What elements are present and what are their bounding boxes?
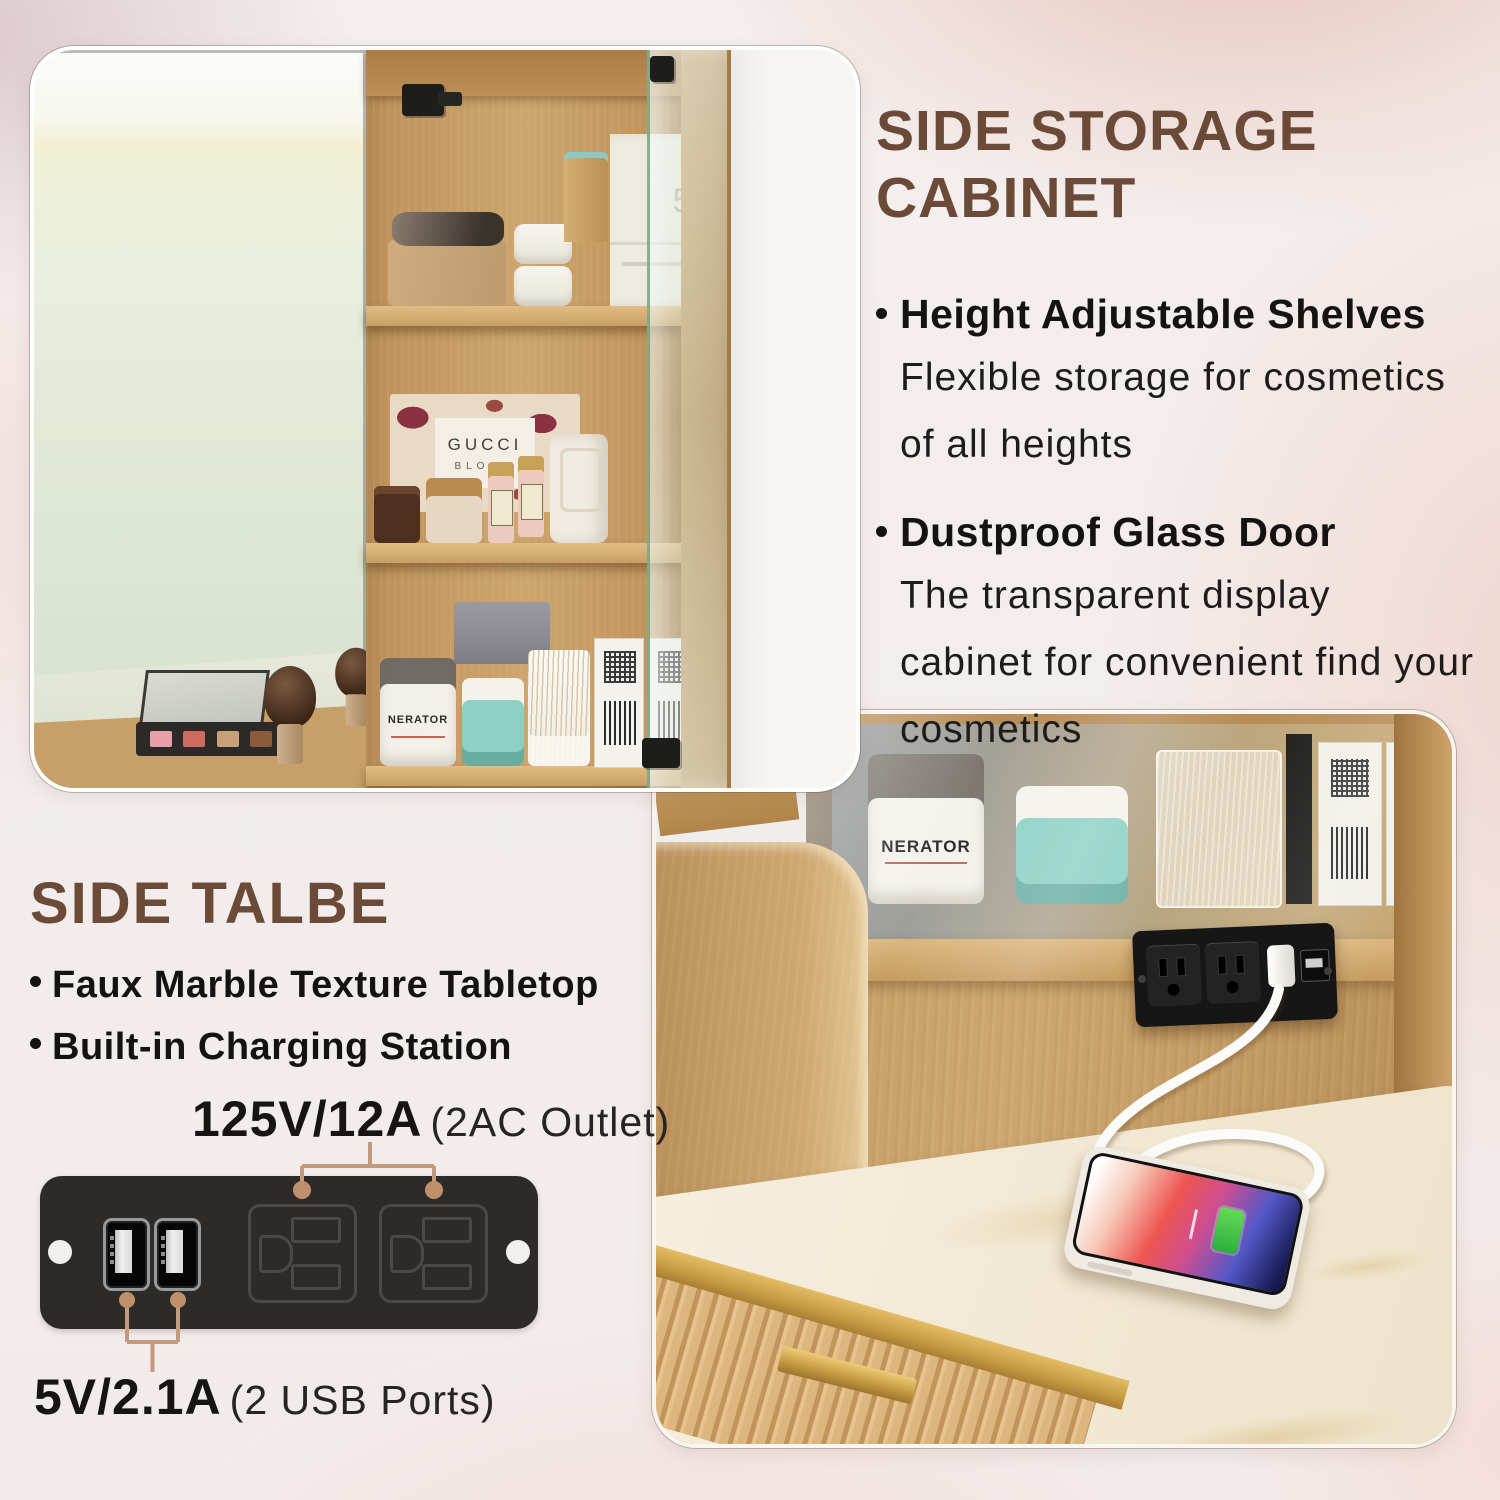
glass-door-hinge (642, 738, 680, 768)
barcode (604, 701, 636, 745)
usb-port (103, 1218, 150, 1291)
charging-panel-graphic (40, 1176, 538, 1329)
perfume-bottle (488, 462, 514, 543)
blush-chip (183, 731, 205, 747)
ac-outlet (379, 1204, 488, 1303)
usb-port-callout: 5V/2.1A(2 USB Ports) (34, 1368, 496, 1426)
cream-jar: NERATOR (380, 658, 456, 766)
door-hinge (402, 84, 444, 116)
feature-bullet: Height Adjustable Shelves Flexible stora… (876, 284, 1490, 478)
perfume-bottle (518, 456, 544, 537)
ac-outlet (248, 1204, 357, 1303)
usb-port (154, 1218, 201, 1291)
blush-chip (217, 731, 239, 747)
side-table-section: SIDE TALBE Faux Marble Texture Tabletop … (30, 872, 630, 1088)
feature-bullet: Faux Marble Texture Tabletop (30, 964, 630, 1006)
storage-cabinet-section: SIDE STORAGE CABINET Height Adjustable S… (876, 98, 1490, 787)
teal-jar (462, 678, 524, 766)
charging-cable (656, 714, 1452, 1444)
section-title: SIDE TALBE (30, 872, 630, 936)
feature-bullet: Built-in Charging Station (30, 1026, 630, 1068)
cabinet-interior: 5D GUCCI BLOOM NERATOR (366, 50, 681, 788)
ac-outlet-callout: 125V/12A(2AC Outlet) (192, 1090, 670, 1148)
jar-label: NERATOR (380, 714, 456, 726)
cotton-swab-cup (528, 650, 590, 766)
bullet-dot-icon (30, 1038, 41, 1049)
glass-door (647, 50, 727, 788)
cabinet-photo: 5D GUCCI BLOOM NERATOR (30, 46, 860, 792)
glass-door-hinge (650, 56, 674, 82)
screw-hole (506, 1240, 530, 1264)
gold-lid-jar (426, 478, 482, 543)
blush-chip (150, 731, 172, 747)
white-wall (731, 50, 852, 788)
adjustable-shelf (366, 306, 681, 326)
adjustable-shelf (366, 766, 681, 786)
makeup-brush (264, 666, 316, 764)
qr-code (604, 651, 636, 683)
screw-hole (48, 1240, 72, 1264)
battery-icon (1211, 1207, 1246, 1255)
product-infographic: 5D GUCCI BLOOM NERATOR (0, 0, 1500, 1500)
bullet-dot-icon (876, 526, 887, 537)
adjustable-shelf (366, 543, 681, 563)
brown-jar (374, 486, 420, 543)
gold-tube (564, 152, 608, 242)
gucci-brand-label: GUCCI (448, 435, 523, 455)
white-clutch (550, 434, 608, 543)
side-table-photo: NERATOR (652, 710, 1456, 1448)
bullet-dot-icon (30, 976, 41, 987)
feature-bullet: Dustproof Glass Door The transparent dis… (876, 502, 1490, 763)
vanity-mirror (34, 50, 366, 788)
section-title: SIDE STORAGE CABINET (876, 98, 1490, 232)
bullet-dot-icon (876, 308, 887, 319)
metal-palette (392, 212, 504, 246)
suede-box (388, 240, 506, 306)
